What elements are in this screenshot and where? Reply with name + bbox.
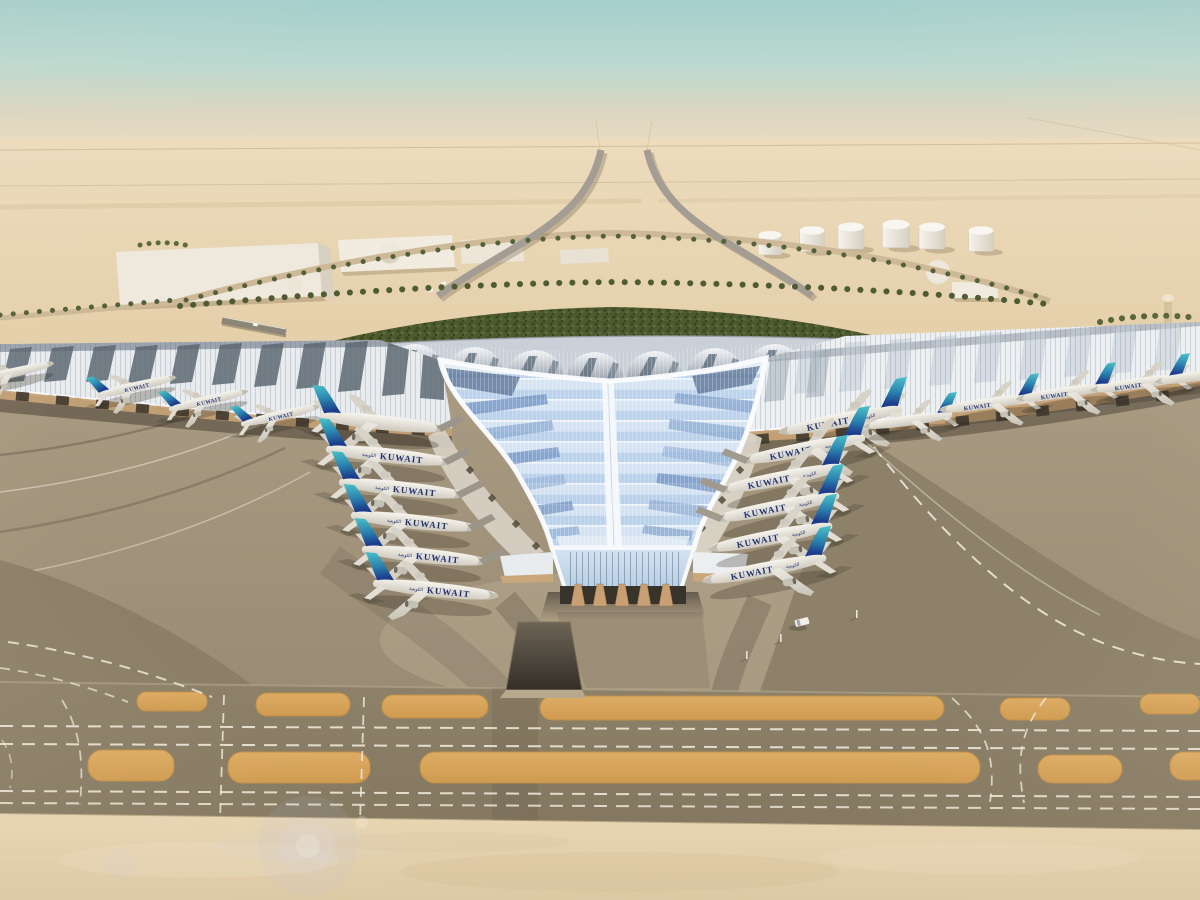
- atmospheric-haze: [0, 0, 1200, 900]
- rendering-canvas: KUWAIT KUWAIT KUWAIT الكويتية KUWAIT الك…: [0, 0, 1200, 900]
